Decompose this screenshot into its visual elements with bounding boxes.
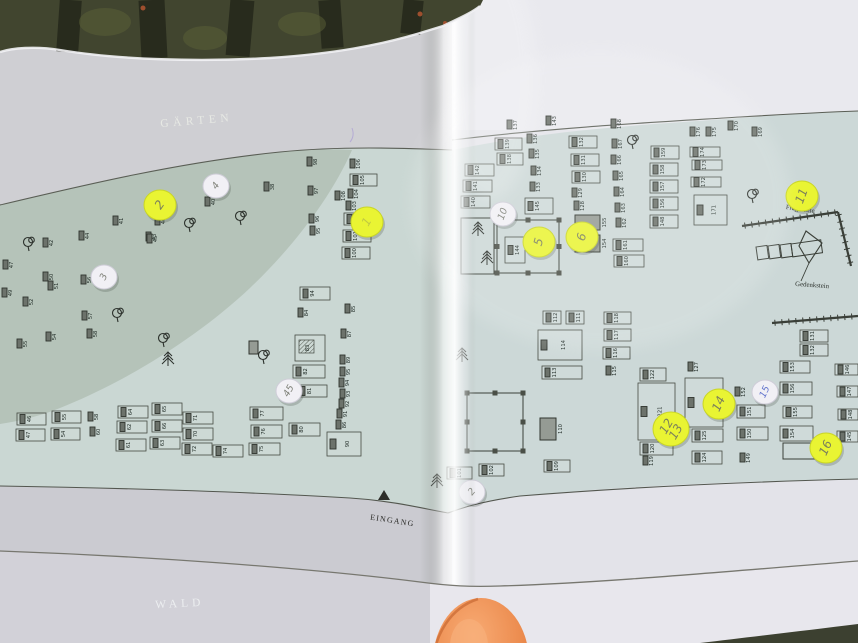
svg-text:64: 64 xyxy=(128,408,134,415)
svg-text:87: 87 xyxy=(347,331,353,338)
svg-text:41: 41 xyxy=(119,218,125,225)
map-plot: 47 xyxy=(16,429,45,441)
svg-text:57: 57 xyxy=(88,313,94,320)
svg-text:72: 72 xyxy=(192,446,198,453)
map-plot: 131 xyxy=(800,330,828,342)
svg-text:54: 54 xyxy=(61,430,67,437)
svg-text:38: 38 xyxy=(270,184,276,191)
svg-text:70: 70 xyxy=(193,431,199,438)
svg-text:96: 96 xyxy=(315,216,321,223)
svg-text:84: 84 xyxy=(304,309,310,316)
map-plot: 153 xyxy=(780,361,810,373)
svg-text:105: 105 xyxy=(360,175,366,185)
svg-text:100: 100 xyxy=(352,248,358,258)
map-plot: 103 xyxy=(346,201,358,211)
map-plot: 108 xyxy=(335,191,347,201)
map-plot: 109 xyxy=(544,460,570,472)
map-plot: 100 xyxy=(342,247,370,259)
svg-text:145: 145 xyxy=(847,432,853,442)
svg-text:45: 45 xyxy=(153,236,159,243)
map-plot: 147 xyxy=(837,386,858,397)
svg-text:49: 49 xyxy=(8,290,14,297)
svg-text:50: 50 xyxy=(49,274,55,281)
svg-text:80: 80 xyxy=(299,426,305,433)
svg-text:62: 62 xyxy=(127,424,133,431)
svg-text:81: 81 xyxy=(307,388,313,395)
svg-text:124: 124 xyxy=(702,452,708,463)
svg-text:75: 75 xyxy=(259,446,265,453)
map-plot: 146 xyxy=(835,364,858,375)
svg-text:63: 63 xyxy=(160,440,166,447)
map-plot: 127 xyxy=(688,362,700,372)
svg-text:132: 132 xyxy=(810,345,816,355)
svg-text:83: 83 xyxy=(305,345,311,352)
map-plot: 83 xyxy=(295,335,325,361)
svg-text:60: 60 xyxy=(96,429,102,436)
svg-text:155: 155 xyxy=(793,407,799,417)
svg-text:44: 44 xyxy=(85,232,91,239)
svg-text:149: 149 xyxy=(746,453,752,463)
photo-of-cemetery-map: 4244434146454038475051495256575855549897… xyxy=(0,0,858,643)
map-plot: 105 xyxy=(350,174,377,186)
map-plot: 90 xyxy=(327,432,361,456)
svg-text:58: 58 xyxy=(94,414,100,421)
svg-text:104: 104 xyxy=(354,188,360,199)
map-plot: 94 xyxy=(300,287,330,300)
map-plot: 106 xyxy=(350,159,362,169)
svg-text:148: 148 xyxy=(848,410,854,420)
map-plot: 150 xyxy=(737,427,768,440)
map-plot: 119 xyxy=(643,456,655,466)
svg-text:102: 102 xyxy=(489,465,495,475)
map-plot: 148 xyxy=(838,409,858,420)
svg-text:156: 156 xyxy=(790,384,796,394)
svg-text:147: 147 xyxy=(847,387,853,397)
svg-text:55: 55 xyxy=(62,414,68,421)
svg-text:119: 119 xyxy=(649,456,655,466)
svg-text:86: 86 xyxy=(342,422,348,429)
svg-text:106: 106 xyxy=(356,159,362,169)
svg-text:127: 127 xyxy=(694,362,700,372)
map-plot: 115 xyxy=(606,366,618,376)
svg-text:89: 89 xyxy=(346,357,352,364)
map-plot: 122 xyxy=(640,368,666,381)
svg-text:109: 109 xyxy=(554,461,560,471)
svg-text:91: 91 xyxy=(343,411,349,418)
map-plot: 63 xyxy=(150,437,180,449)
svg-text:97: 97 xyxy=(314,188,320,195)
map-plot: 149 xyxy=(740,453,752,463)
svg-text:74: 74 xyxy=(223,447,229,454)
map-plot: 70 xyxy=(183,428,213,440)
svg-text:152: 152 xyxy=(741,387,747,397)
map-plot: 61 xyxy=(116,439,146,451)
svg-text:58: 58 xyxy=(93,331,99,338)
map-plot: 75 xyxy=(249,443,280,455)
map-plot: 113 xyxy=(542,366,582,379)
svg-text:66: 66 xyxy=(162,423,168,430)
svg-text:153: 153 xyxy=(790,362,796,372)
map-plot: 62 xyxy=(117,421,147,433)
svg-text:76: 76 xyxy=(261,428,267,435)
svg-text:42: 42 xyxy=(49,240,55,247)
svg-text:71: 71 xyxy=(193,415,199,422)
svg-text:47: 47 xyxy=(9,262,15,269)
map-plot: 82 xyxy=(293,365,325,378)
map-plot: 132 xyxy=(800,344,828,356)
map-plot: 54 xyxy=(51,428,80,440)
svg-text:150: 150 xyxy=(747,429,753,439)
svg-text:92: 92 xyxy=(345,401,351,408)
map-plot: 64 xyxy=(118,406,148,418)
map-plot: 80 xyxy=(289,423,320,436)
svg-text:94: 94 xyxy=(310,290,316,297)
map-plot: 77 xyxy=(250,407,283,420)
svg-text:115: 115 xyxy=(612,366,618,376)
svg-text:110: 110 xyxy=(558,424,564,434)
map-plot: 155 xyxy=(783,406,812,418)
svg-text:65: 65 xyxy=(162,406,168,413)
svg-text:154: 154 xyxy=(790,428,796,439)
svg-text:125: 125 xyxy=(702,431,708,441)
map-plot: 74 xyxy=(213,445,243,457)
svg-text:90: 90 xyxy=(345,441,351,448)
map-plot: 151 xyxy=(737,405,765,418)
map-plot: 72 xyxy=(182,443,212,455)
map-plot: 152 xyxy=(735,387,747,397)
map-plot: 71 xyxy=(183,412,213,424)
map-plot: 125 xyxy=(692,429,723,442)
map-plot: 102 xyxy=(479,464,504,476)
svg-text:146: 146 xyxy=(845,365,851,375)
svg-text:95: 95 xyxy=(346,369,352,376)
svg-text:85: 85 xyxy=(351,306,357,313)
svg-text:46: 46 xyxy=(27,416,33,423)
svg-text:131: 131 xyxy=(810,331,816,341)
map-plot: 124 xyxy=(692,451,722,464)
map-plot: 66 xyxy=(152,420,182,432)
svg-text:61: 61 xyxy=(126,442,132,449)
svg-text:55: 55 xyxy=(23,341,29,348)
map-plot: 104 xyxy=(348,188,360,199)
svg-text:93: 93 xyxy=(346,391,352,398)
map-plot xyxy=(249,341,258,354)
map-plot: 55 xyxy=(52,411,81,423)
svg-text:122: 122 xyxy=(650,370,656,380)
svg-text:108: 108 xyxy=(341,191,347,201)
svg-text:95: 95 xyxy=(316,228,322,235)
svg-text:113: 113 xyxy=(552,368,558,378)
svg-text:51: 51 xyxy=(54,283,60,290)
svg-text:94: 94 xyxy=(345,379,351,386)
map-plot: 156 xyxy=(780,382,812,395)
svg-text:47: 47 xyxy=(26,432,32,439)
map-plot: 154 xyxy=(780,426,813,441)
svg-text:120: 120 xyxy=(650,444,656,454)
svg-text:52: 52 xyxy=(29,299,35,306)
svg-text:82: 82 xyxy=(303,368,309,375)
svg-text:54: 54 xyxy=(52,333,58,340)
map-plot: 76 xyxy=(251,425,282,438)
map-plot: 65 xyxy=(152,403,182,415)
map-plot: 46 xyxy=(17,413,46,425)
svg-text:98: 98 xyxy=(313,159,319,166)
svg-text:77: 77 xyxy=(260,410,266,417)
svg-text:151: 151 xyxy=(747,407,753,417)
svg-text:103: 103 xyxy=(352,201,358,211)
